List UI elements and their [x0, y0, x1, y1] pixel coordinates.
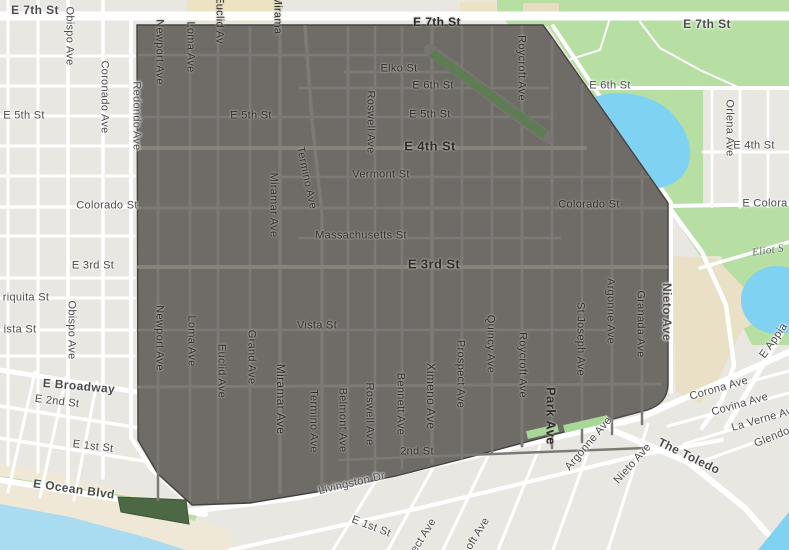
- blocks-overlay-topright: [703, 90, 789, 206]
- base-map-svg: [0, 0, 789, 550]
- map-viewport[interactable]: E 7th StE 7th StE 7th StE 5th StE 5th St…: [0, 0, 789, 550]
